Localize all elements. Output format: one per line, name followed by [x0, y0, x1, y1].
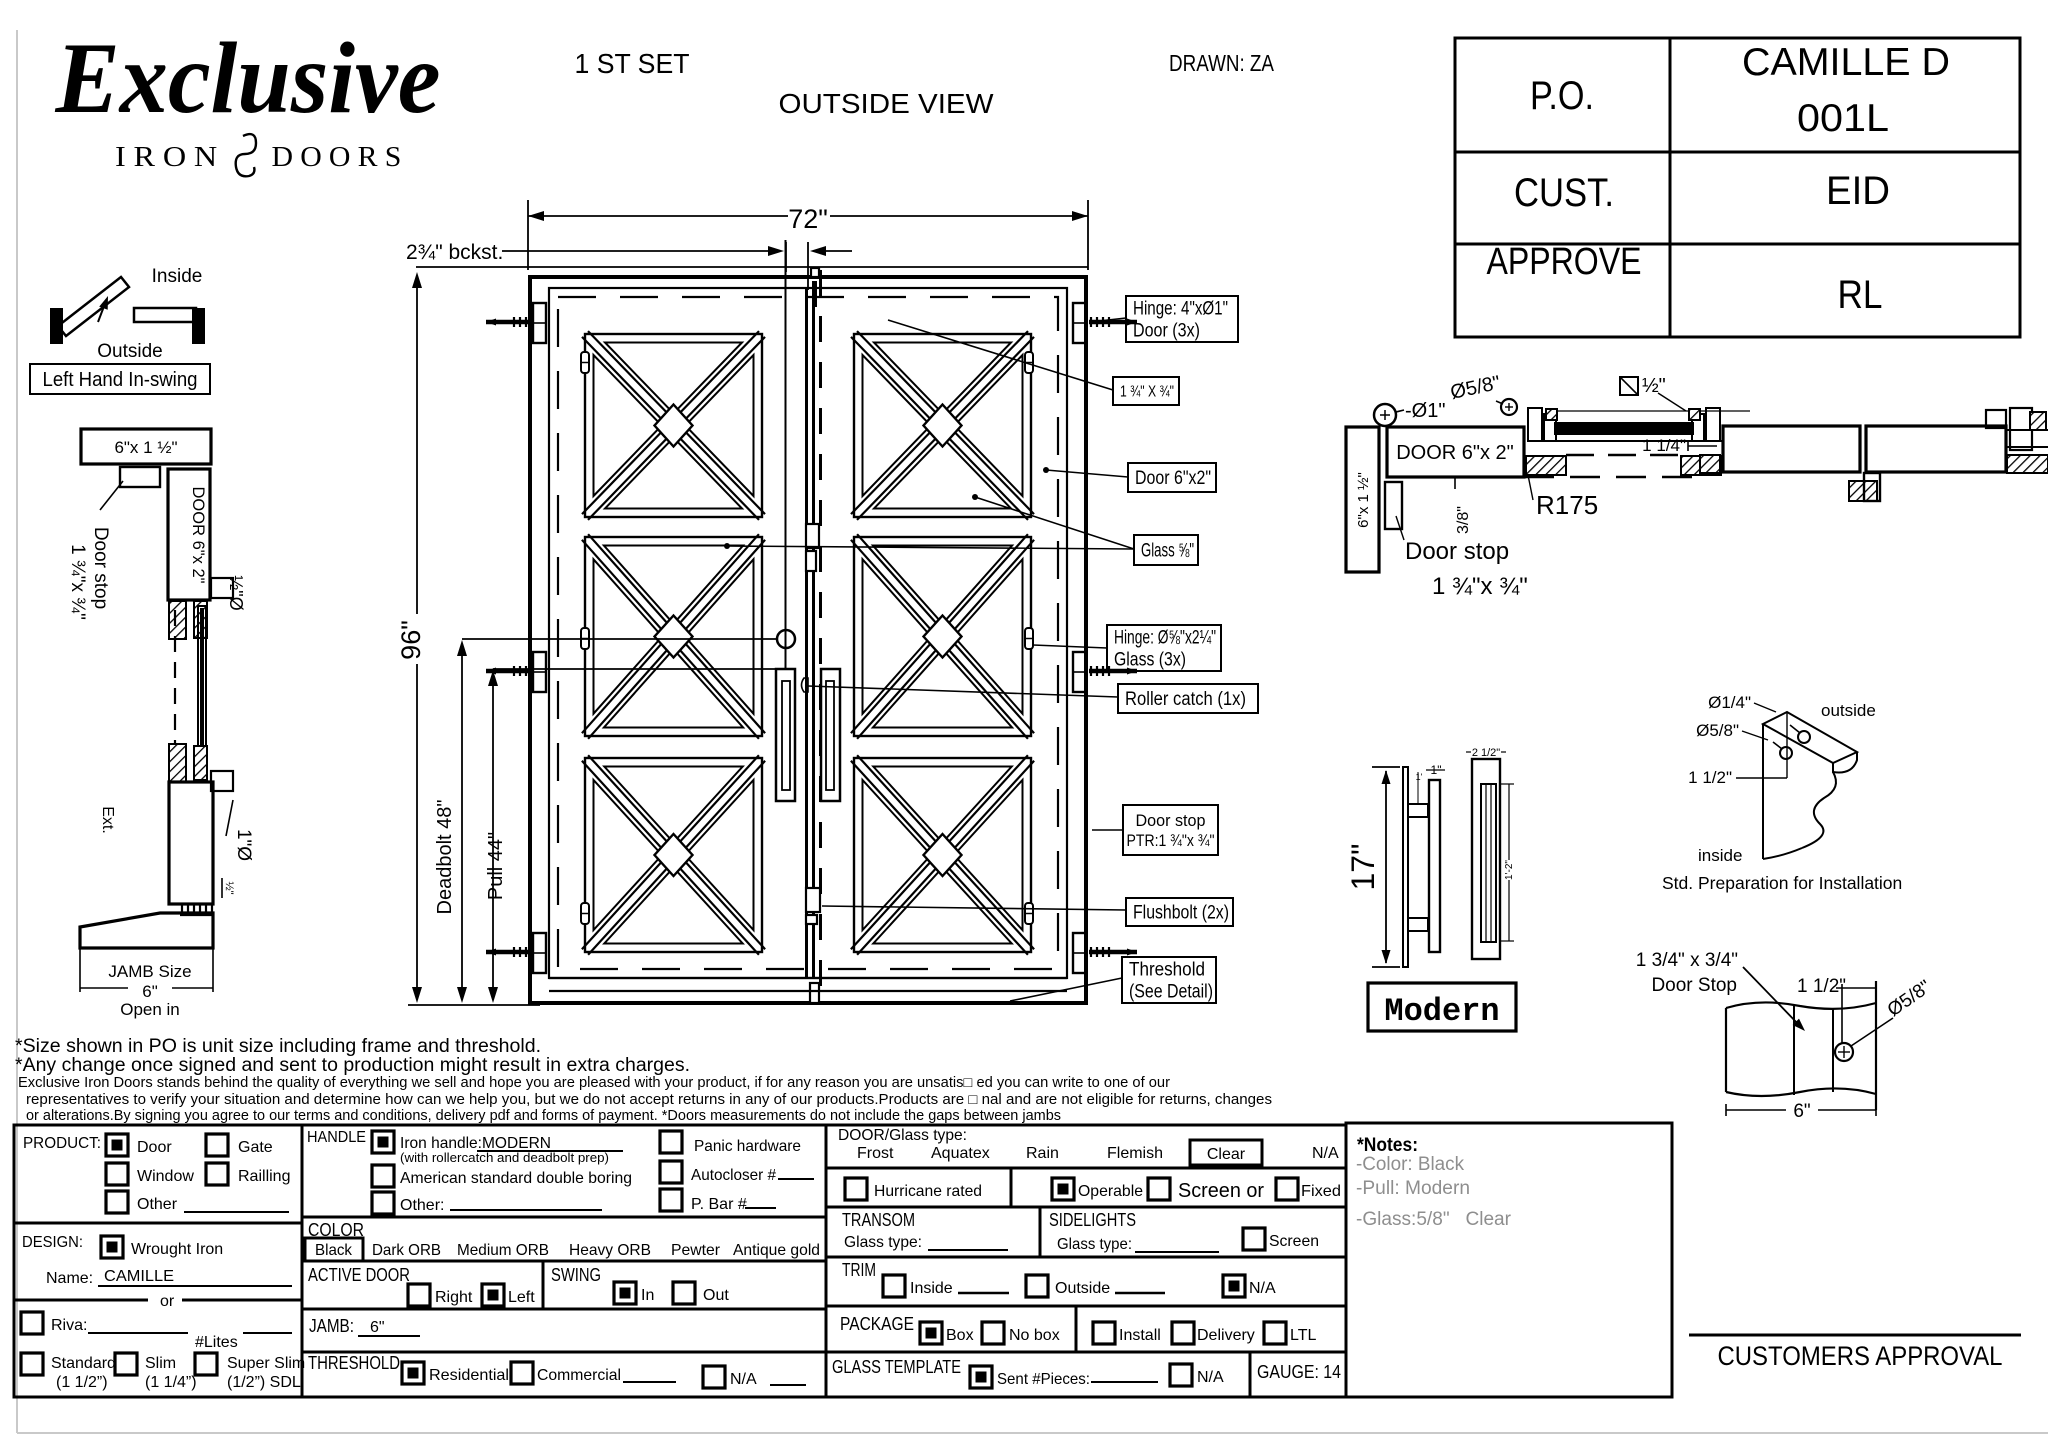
svg-text:Sent #Pieces:: Sent #Pieces:: [997, 1371, 1090, 1388]
svg-text:GLASS TEMPLATE: GLASS TEMPLATE: [832, 1357, 961, 1377]
svg-text:Panic hardware: Panic hardware: [694, 1138, 801, 1155]
svg-text:Glass ⅝": Glass ⅝": [1141, 541, 1194, 562]
svg-text:Std. Preparation for Installat: Std. Preparation for Installation: [1662, 873, 1902, 893]
svg-text:APPROVE: APPROVE: [1487, 241, 1642, 283]
svg-text:6": 6": [142, 982, 158, 1001]
svg-text:TRIM: TRIM: [842, 1260, 876, 1280]
svg-text:(1/2”) SDL: (1/2”) SDL: [227, 1374, 301, 1391]
svg-text:(See Detail): (See Detail): [1129, 982, 1213, 1003]
svg-text:Screen: Screen: [1269, 1233, 1319, 1250]
svg-text:CAMILLE D: CAMILLE D: [1742, 41, 1950, 84]
svg-text:1 3/4" x 3/4": 1 3/4" x 3/4": [1636, 950, 1738, 971]
svg-text:Aquatex: Aquatex: [931, 1145, 990, 1162]
svg-text:Heavy ORB: Heavy ORB: [569, 1242, 651, 1259]
svg-text:Inside: Inside: [152, 266, 203, 287]
svg-text:Hinge: 4"xØ1": Hinge: 4"xØ1": [1133, 299, 1228, 320]
svg-text:In: In: [641, 1287, 654, 1304]
svg-text:½"Ø: ½"Ø: [226, 575, 246, 610]
svg-text:EID: EID: [1826, 169, 1890, 213]
svg-text:CUSTOMERS APPROVAL: CUSTOMERS APPROVAL: [1718, 1341, 2003, 1371]
svg-text:CUST.: CUST.: [1514, 171, 1614, 215]
svg-text:or alterations.By signing you: or alterations.By signing you agree to o…: [26, 1108, 1061, 1124]
svg-text:Glass type:: Glass type:: [1057, 1236, 1132, 1253]
svg-text:DRAWN: ZA: DRAWN: ZA: [1169, 50, 1275, 76]
svg-text:SWING: SWING: [551, 1265, 601, 1285]
svg-text:1 ¾"x ¾": 1 ¾"x ¾": [67, 544, 88, 620]
svg-text:TRANSOM: TRANSOM: [842, 1210, 915, 1230]
svg-text:Deadbolt 48": Deadbolt 48": [434, 800, 456, 915]
svg-text:2¾" bckst.: 2¾" bckst.: [406, 241, 503, 264]
svg-text:Roller catch (1x): Roller catch (1x): [1125, 689, 1246, 710]
svg-text:Other: Other: [137, 1196, 178, 1213]
svg-text:Door stop: Door stop: [90, 527, 111, 609]
svg-text:Modern: Modern: [1384, 993, 1499, 1030]
svg-text:OUTSIDE VIEW: OUTSIDE VIEW: [779, 88, 995, 119]
svg-text:1 1/2": 1 1/2": [1797, 976, 1846, 997]
svg-text:(1 1/2”): (1 1/2”): [56, 1374, 108, 1391]
svg-text:Name:: Name:: [46, 1270, 93, 1287]
svg-text:representatives to verify your: representatives to verify your situation…: [26, 1092, 1272, 1108]
svg-text:-Color: Black: -Color: Black: [1356, 1154, 1464, 1175]
svg-text:1 1/4": 1 1/4": [1642, 436, 1686, 455]
svg-text:Install: Install: [1119, 1327, 1161, 1344]
svg-text:-Pull: Modern: -Pull: Modern: [1356, 1178, 1470, 1199]
svg-text:N/A: N/A: [1197, 1369, 1224, 1386]
svg-text:Outside: Outside: [97, 341, 162, 362]
svg-text:HANDLE: HANDLE: [307, 1129, 366, 1146]
svg-text:96": 96": [396, 620, 426, 660]
svg-text:Out: Out: [703, 1287, 729, 1304]
svg-text:Antique gold: Antique gold: [733, 1242, 820, 1259]
svg-text:72": 72": [788, 204, 828, 234]
svg-text:Left: Left: [508, 1289, 535, 1306]
svg-text:DOOR/Glass type:: DOOR/Glass type:: [838, 1127, 967, 1144]
svg-text:Autocloser #: Autocloser #: [691, 1167, 776, 1184]
svg-text:R175: R175: [1536, 490, 1598, 520]
svg-text:Pewter: Pewter: [671, 1242, 721, 1259]
svg-text:N/A: N/A: [730, 1371, 757, 1388]
svg-text:Inside: Inside: [910, 1280, 953, 1297]
svg-text:P.O.: P.O.: [1530, 74, 1594, 118]
svg-text:PRODUCT:: PRODUCT:: [23, 1135, 101, 1152]
svg-text:PTR:1 ¾"x ¾": PTR:1 ¾"x ¾": [1127, 831, 1215, 850]
svg-text:6": 6": [370, 1319, 385, 1336]
svg-text:Flushbolt (2x): Flushbolt (2x): [1133, 903, 1229, 924]
svg-text:Other:: Other:: [400, 1197, 444, 1214]
svg-text:LTL: LTL: [1290, 1327, 1316, 1344]
svg-text:1': 1': [1416, 772, 1423, 782]
svg-text:001L: 001L: [1797, 97, 1889, 140]
svg-text:RL: RL: [1838, 273, 1883, 317]
svg-text:Exclusive Iron Doors stands be: Exclusive Iron Doors stands behind the q…: [18, 1075, 1170, 1091]
svg-text:Door: Door: [137, 1139, 172, 1156]
svg-text:17": 17": [1345, 844, 1381, 891]
svg-text:or: or: [160, 1293, 175, 1310]
svg-text:6": 6": [1793, 1101, 1810, 1122]
svg-text:IRON: IRON: [115, 141, 225, 173]
svg-text:(with rollercatch and deadbolt: (with rollercatch and deadbolt prep): [400, 1150, 609, 1165]
svg-text:GAUGE: 14: GAUGE: 14: [1257, 1362, 1341, 1382]
svg-text:Exclusive: Exclusive: [55, 22, 441, 135]
svg-text:inside: inside: [1698, 846, 1742, 865]
svg-text:Ext.: Ext.: [99, 806, 116, 834]
svg-text:DOOR 6"x 2": DOOR 6"x 2": [189, 487, 207, 584]
svg-text:1 ¾" X ¾": 1 ¾" X ¾": [1120, 384, 1174, 401]
svg-text:1 ¾"x ¾": 1 ¾"x ¾": [1432, 573, 1528, 600]
svg-text:PACKAGE: PACKAGE: [840, 1314, 914, 1334]
svg-text:Door 6"x2": Door 6"x2": [1135, 468, 1211, 489]
svg-text:CAMILLE: CAMILLE: [104, 1268, 174, 1285]
svg-text:Railling: Railling: [238, 1168, 290, 1185]
svg-text:Delivery: Delivery: [1197, 1327, 1255, 1344]
svg-text:P. Bar #: P. Bar #: [691, 1196, 747, 1213]
svg-text:Left Hand In-swing: Left Hand In-swing: [43, 369, 198, 391]
svg-text:Operable: Operable: [1078, 1183, 1143, 1200]
svg-text:Clear: Clear: [1207, 1146, 1246, 1163]
svg-text:½": ½": [1642, 375, 1666, 397]
svg-text:#Lites: #Lites: [195, 1334, 238, 1351]
svg-text:Standard: Standard: [51, 1355, 116, 1372]
svg-text:SIDELIGHTS: SIDELIGHTS: [1049, 1210, 1136, 1230]
svg-text:(1 1/4”): (1 1/4”): [145, 1374, 197, 1391]
svg-text:Pull 44": Pull 44": [485, 832, 507, 900]
svg-text:N/A: N/A: [1249, 1280, 1276, 1297]
svg-text:outside: outside: [1821, 701, 1876, 720]
svg-text:Hurricane rated: Hurricane rated: [874, 1183, 982, 1200]
svg-text:Door stop: Door stop: [1136, 811, 1206, 830]
svg-text:DOOR 6"x 2": DOOR 6"x 2": [1396, 442, 1514, 464]
svg-text:THRESHOLD: THRESHOLD: [308, 1353, 400, 1373]
svg-text:1"Ø: 1"Ø: [233, 829, 254, 861]
svg-text:Screen or: Screen or: [1178, 1180, 1264, 1202]
svg-text:Door Stop: Door Stop: [1651, 975, 1737, 996]
svg-text:Glass (3x): Glass (3x): [1114, 650, 1186, 671]
svg-text:JAMB:: JAMB:: [309, 1316, 354, 1336]
svg-text:Fixed: Fixed: [1301, 1183, 1341, 1200]
svg-text:*Size shown in PO is unit size: *Size shown in PO is unit size including…: [15, 1036, 541, 1057]
svg-text:ACTIVE DOOR: ACTIVE DOOR: [308, 1265, 410, 1285]
svg-text:6"x 1 ½": 6"x 1 ½": [1355, 472, 1372, 528]
svg-text:-Glass:5/8" Clear: -Glass:5/8" Clear: [1356, 1209, 1512, 1230]
svg-text:*Any change once signed and se: *Any change once signed and sent to prod…: [15, 1055, 690, 1076]
svg-text:Ø1/4": Ø1/4": [1708, 693, 1751, 712]
svg-text:Flemish: Flemish: [1107, 1145, 1163, 1162]
svg-text:Gate: Gate: [238, 1139, 273, 1156]
svg-text:Glass type:: Glass type:: [844, 1234, 922, 1251]
svg-text:Frost: Frost: [857, 1145, 894, 1162]
svg-text:Open in: Open in: [120, 1000, 180, 1019]
svg-text:Riva:: Riva:: [51, 1317, 87, 1334]
svg-text:1'-2": 1'-2": [1504, 860, 1515, 880]
svg-text:Box: Box: [946, 1327, 974, 1344]
svg-text:Commercial: Commercial: [537, 1367, 621, 1384]
svg-text:Hinge: Ø⅝"x2¼": Hinge: Ø⅝"x2¼": [1114, 628, 1216, 649]
svg-text:1 1/2": 1 1/2": [1688, 768, 1732, 787]
svg-text:DESIGN:: DESIGN:: [22, 1234, 83, 1251]
svg-text:Black: Black: [315, 1242, 353, 1259]
svg-text:No box: No box: [1009, 1327, 1060, 1344]
svg-text:Dark ORB: Dark ORB: [372, 1242, 441, 1259]
svg-text:Slim: Slim: [145, 1355, 176, 1372]
svg-text:Medium ORB: Medium ORB: [457, 1242, 549, 1259]
svg-text:½": ½": [223, 881, 235, 894]
svg-text:DOORS: DOORS: [272, 141, 409, 173]
svg-text:Rain: Rain: [1026, 1145, 1059, 1162]
svg-text:2 1/2": 2 1/2": [1472, 747, 1500, 759]
svg-text:JAMB Size: JAMB Size: [108, 962, 191, 981]
svg-text:6"x 1 ½": 6"x 1 ½": [114, 438, 177, 457]
svg-text:Window: Window: [137, 1168, 194, 1185]
svg-text:Threshold: Threshold: [1129, 960, 1205, 981]
svg-text:-Ø1": -Ø1": [1405, 400, 1445, 422]
svg-text:Right: Right: [435, 1289, 473, 1306]
svg-text:3/8": 3/8": [1455, 506, 1472, 534]
svg-text:American standard double borin: American standard double boring: [400, 1170, 632, 1187]
svg-text:*Notes:: *Notes:: [1357, 1135, 1418, 1156]
svg-text:Residential: Residential: [429, 1367, 509, 1384]
svg-text:Outside: Outside: [1055, 1280, 1110, 1297]
svg-text:Super Slim: Super Slim: [227, 1355, 305, 1372]
svg-text:Door stop: Door stop: [1405, 538, 1509, 565]
svg-text:Wrought Iron: Wrought Iron: [131, 1241, 223, 1258]
svg-text:Door (3x): Door (3x): [1133, 321, 1200, 342]
svg-text:Ø5/8": Ø5/8": [1696, 721, 1739, 740]
svg-text:1 ST SET: 1 ST SET: [575, 48, 690, 79]
svg-text:N/A: N/A: [1312, 1145, 1339, 1162]
